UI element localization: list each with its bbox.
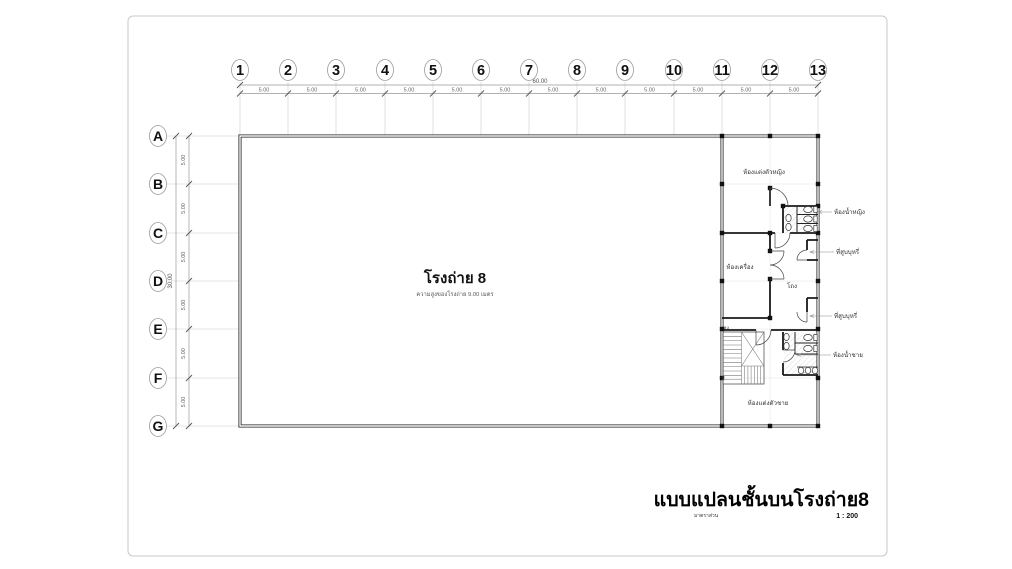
- studio-note: ความสูงของโรงถ่าย 9.00 เมตร: [416, 290, 493, 298]
- row-letter: D: [153, 273, 163, 289]
- column-number: 2: [284, 63, 292, 79]
- bay-height-label: 5.00: [181, 397, 187, 408]
- drawing-sheet: 60.00 5.005.005.005.005.005.005.005.005.…: [0, 0, 1012, 569]
- room-label-toilet-female: ห้องน้ำหญิง: [834, 207, 865, 216]
- scale-label: มาตราส่วน: [694, 513, 719, 519]
- column-post: [816, 376, 820, 380]
- column-post: [720, 279, 724, 283]
- column-number: 1: [236, 63, 244, 79]
- bay-width-label: 5.00: [693, 88, 704, 94]
- sheet-title: แบบแปลนชั้นบนโรงถ่าย8: [654, 484, 869, 511]
- column-post: [781, 204, 785, 208]
- column-number: 7: [525, 63, 533, 79]
- studio-room: โรงถ่าย 8 ความสูงของโรงถ่าย 9.00 เมตร: [416, 268, 493, 298]
- bay-width-label: 5.00: [500, 88, 511, 94]
- column-number: 11: [714, 63, 729, 79]
- column-number: 8: [573, 63, 581, 79]
- bay-height-label: 5.00: [181, 155, 187, 166]
- column-post: [816, 134, 820, 138]
- bay-width-label: 5.00: [548, 88, 559, 94]
- row-letter: C: [153, 225, 163, 241]
- column-number: 10: [666, 63, 682, 79]
- column-post: [768, 134, 772, 138]
- bay-height-label: 5.00: [181, 348, 187, 359]
- column-post: [720, 231, 724, 235]
- row-letter: G: [153, 418, 164, 434]
- bay-width-label: 5.00: [452, 88, 463, 94]
- stair-down-label: ลง: [724, 327, 729, 332]
- bay-width-label: 5.00: [259, 88, 270, 94]
- column-number: 12: [762, 63, 778, 79]
- column-post: [816, 327, 820, 331]
- bay-width-label: 5.00: [355, 88, 366, 94]
- overall-width-label: 60.00: [532, 79, 548, 85]
- row-letter: F: [154, 370, 163, 386]
- overall-height-label: 30.00: [168, 273, 174, 289]
- room-label-hall: โถง: [787, 282, 797, 290]
- column-number: 3: [332, 63, 340, 79]
- row-letter: E: [153, 321, 162, 337]
- urinal-fixture: [798, 367, 818, 373]
- room-label-machine: ห้องเครื่อง: [726, 263, 753, 271]
- column-post: [768, 316, 772, 320]
- column-post: [816, 424, 820, 428]
- bay-width-label: 5.00: [741, 88, 752, 94]
- studio-name: โรงถ่าย 8: [423, 268, 486, 287]
- room-label-dressing-male: ห้องแต่งตัวชาย: [748, 399, 789, 407]
- column-post: [816, 279, 820, 283]
- column-post: [720, 182, 724, 186]
- room-label-smoking-lower: ที่สูบบุหรี่: [834, 312, 858, 320]
- room-label-smoking-upper: ที่สูบบุหรี่: [836, 248, 860, 256]
- bay-height-label: 5.00: [181, 252, 187, 263]
- column-number: 5: [429, 63, 437, 79]
- floor-plan: 60.00 5.005.005.005.005.005.005.005.005.…: [0, 0, 1012, 569]
- column-post: [768, 231, 772, 235]
- paper-border: [128, 16, 887, 556]
- column-post: [768, 424, 772, 428]
- bay-width-label: 5.00: [644, 88, 655, 94]
- bay-width-label: 5.00: [596, 88, 607, 94]
- column-post: [816, 182, 820, 186]
- column-number: 6: [477, 63, 485, 79]
- bay-width-label: 5.00: [404, 88, 415, 94]
- column-post: [720, 424, 724, 428]
- toilet-fixture: [804, 206, 818, 231]
- bay-height-label: 5.00: [181, 300, 187, 311]
- room-label-toilet-male: ห้องน้ำชาย: [833, 350, 863, 359]
- row-letter: B: [153, 176, 163, 192]
- column-post: [720, 134, 724, 138]
- bay-width-label: 5.00: [307, 88, 318, 94]
- column-number: 4: [381, 63, 389, 79]
- scale-value: 1 : 200: [836, 513, 858, 520]
- row-letter: A: [153, 128, 163, 144]
- column-number: 13: [810, 63, 826, 79]
- bay-height-label: 5.00: [181, 203, 187, 214]
- bay-width-label: 5.00: [789, 88, 800, 94]
- column-number: 9: [621, 63, 629, 79]
- room-label-dressing-female: ห้องแต่งตัวหญิง: [743, 168, 785, 176]
